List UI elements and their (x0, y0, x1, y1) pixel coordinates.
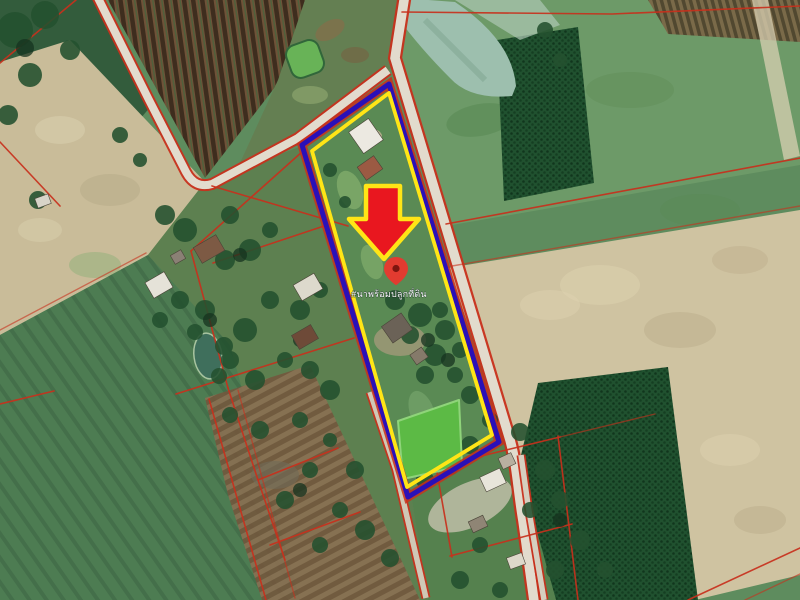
location-label: #นาพร้อมปลูกที่ดิน (351, 287, 427, 300)
satellite-map-image: #นาพร้อมปลูกที่ดิน (0, 0, 800, 600)
satellite-map-canvas: #นาพร้อมปลูกที่ดิน (0, 0, 800, 600)
